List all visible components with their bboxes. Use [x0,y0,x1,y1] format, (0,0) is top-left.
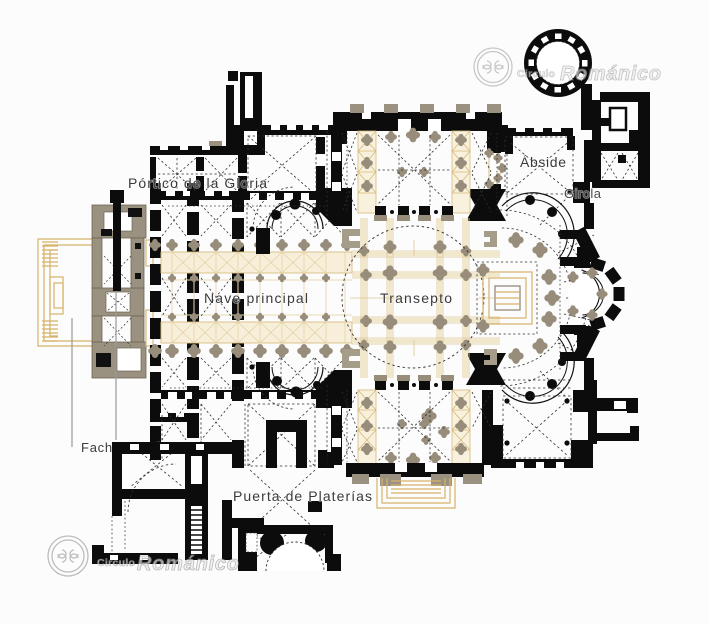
svg-text:Pórtico de la Gloria: Pórtico de la Gloria [128,175,267,191]
svg-text:Circulo: Circulo [517,68,555,80]
svg-text:Románico: Románico [137,553,239,575]
svg-text:Girola: Girola [564,186,602,201]
svg-text:Ábside: Ábside [520,154,566,170]
svg-text:Circulo: Circulo [97,557,135,569]
svg-text:Románico: Románico [560,63,661,85]
svg-text:Nave principal: Nave principal [204,290,308,306]
svg-text:Puerta de Platerías: Puerta de Platerías [233,488,372,504]
svg-text:Transepto: Transepto [380,290,452,306]
